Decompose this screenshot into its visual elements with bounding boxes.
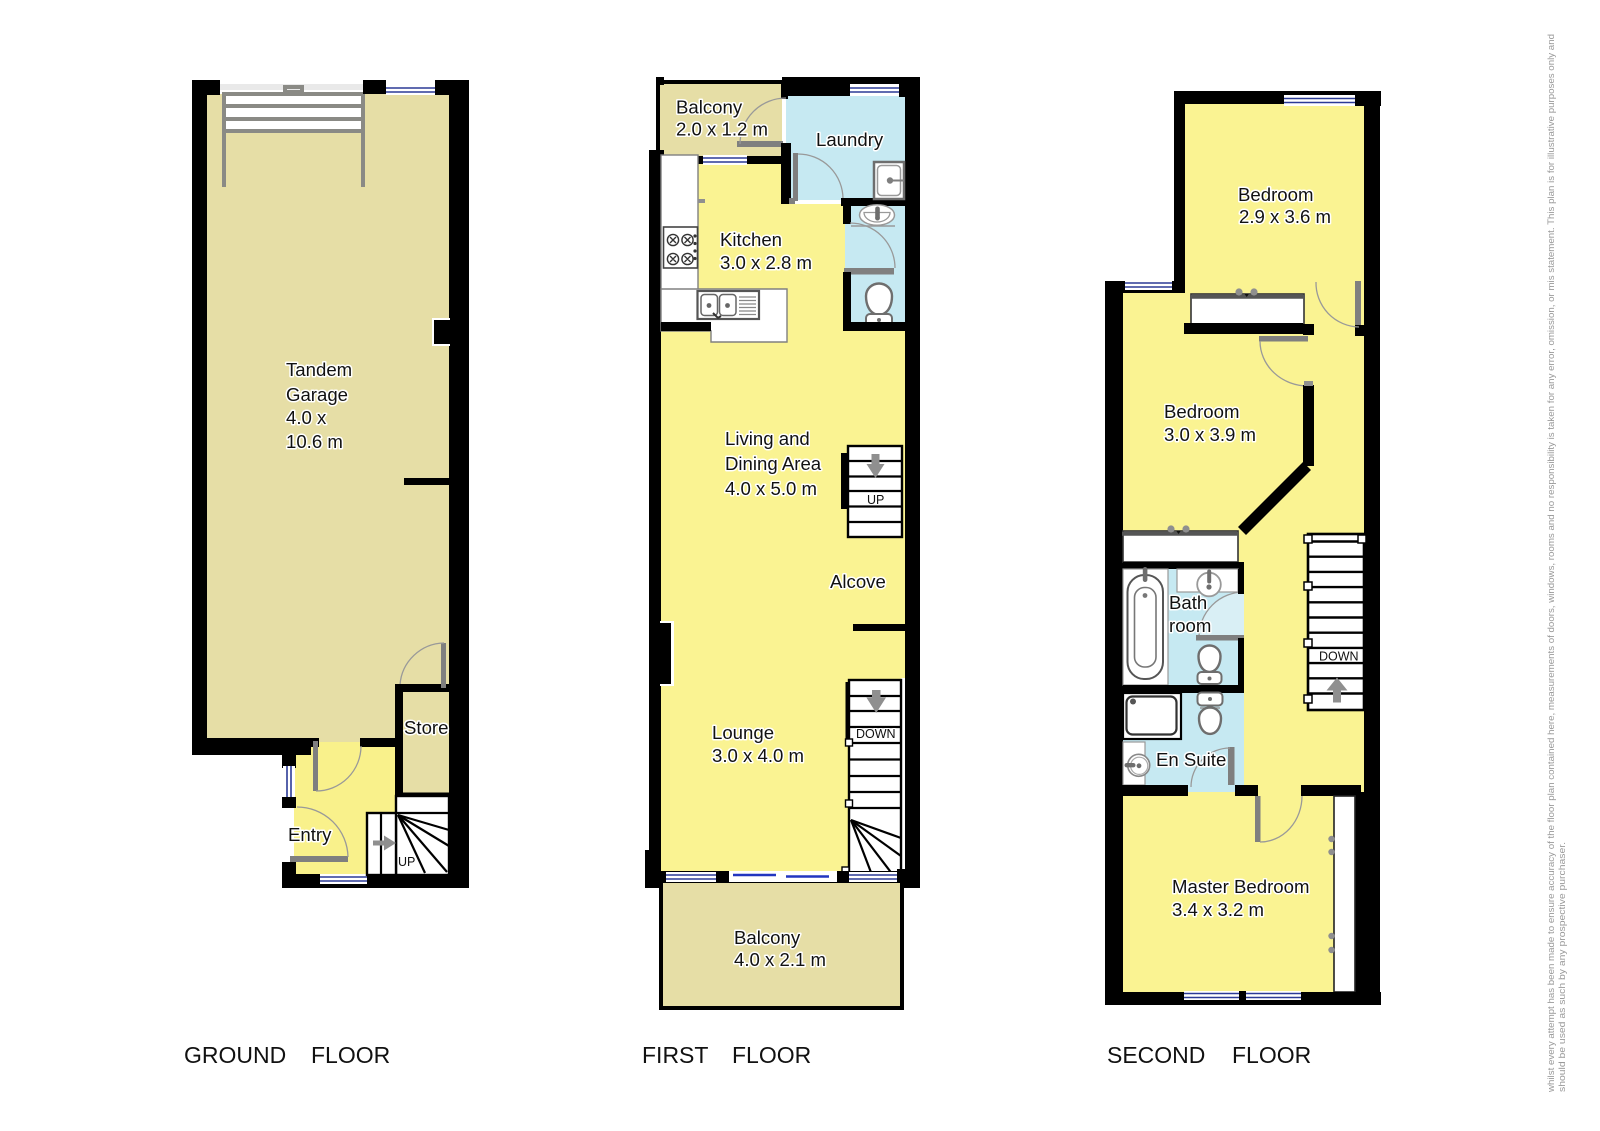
svg-text:Balcony: Balcony [676, 97, 743, 118]
svg-text:Living and: Living and [725, 428, 810, 449]
svg-text:3.0 x 3.9 m: 3.0 x 3.9 m [1164, 424, 1256, 445]
svg-text:Kitchen: Kitchen [720, 229, 782, 250]
svg-text:FLOOR: FLOOR [1232, 1042, 1311, 1068]
svg-text:Garage: Garage [286, 384, 348, 405]
svg-text:DOWN: DOWN [1319, 650, 1359, 664]
svg-text:Entry: Entry [288, 824, 332, 845]
svg-text:3.0 x 4.0 m: 3.0 x 4.0 m [712, 745, 804, 766]
svg-text:UP: UP [398, 855, 415, 869]
svg-text:3.4 x 3.2 m: 3.4 x 3.2 m [1172, 899, 1264, 920]
svg-text:2.9 x 3.6 m: 2.9 x 3.6 m [1239, 206, 1331, 227]
svg-text:10.6 m: 10.6 m [286, 431, 343, 452]
svg-text:Master Bedroom: Master Bedroom [1172, 876, 1309, 897]
svg-text:FIRST: FIRST [642, 1042, 708, 1068]
svg-text:Bath: Bath [1169, 592, 1207, 613]
svg-text:FLOOR: FLOOR [311, 1042, 390, 1068]
svg-text:3.0 x 2.8 m: 3.0 x 2.8 m [720, 252, 812, 273]
svg-text:4.0 x 5.0 m: 4.0 x 5.0 m [725, 478, 817, 499]
svg-text:SECOND: SECOND [1107, 1042, 1205, 1068]
svg-text:whilst every attempt has been: whilst every attempt has been made to en… [1546, 34, 1556, 1093]
svg-text:Balcony: Balcony [734, 927, 801, 948]
svg-text:GROUND: GROUND [184, 1042, 286, 1068]
svg-text:Dining Area: Dining Area [725, 453, 822, 474]
svg-text:4.0 x 2.1 m: 4.0 x 2.1 m [734, 949, 826, 970]
svg-text:4.0 x: 4.0 x [286, 407, 327, 428]
svg-text:should be used as such by any: should be used as such by any prospectiv… [1557, 842, 1567, 1092]
svg-text:Lounge: Lounge [712, 722, 774, 743]
svg-text:2.0 x 1.2 m: 2.0 x 1.2 m [676, 119, 768, 140]
svg-text:Bedroom: Bedroom [1238, 184, 1313, 205]
svg-text:Store: Store [404, 717, 448, 738]
svg-text:FLOOR: FLOOR [732, 1042, 811, 1068]
svg-text:DOWN: DOWN [856, 727, 896, 741]
svg-text:Laundry: Laundry [816, 129, 884, 150]
svg-text:UP: UP [867, 493, 884, 507]
svg-text:Bedroom: Bedroom [1164, 401, 1239, 422]
svg-text:Tandem: Tandem [286, 359, 352, 380]
svg-text:En Suite: En Suite [1156, 749, 1226, 770]
svg-text:Alcove: Alcove [830, 571, 886, 592]
svg-text:room: room [1169, 615, 1211, 636]
